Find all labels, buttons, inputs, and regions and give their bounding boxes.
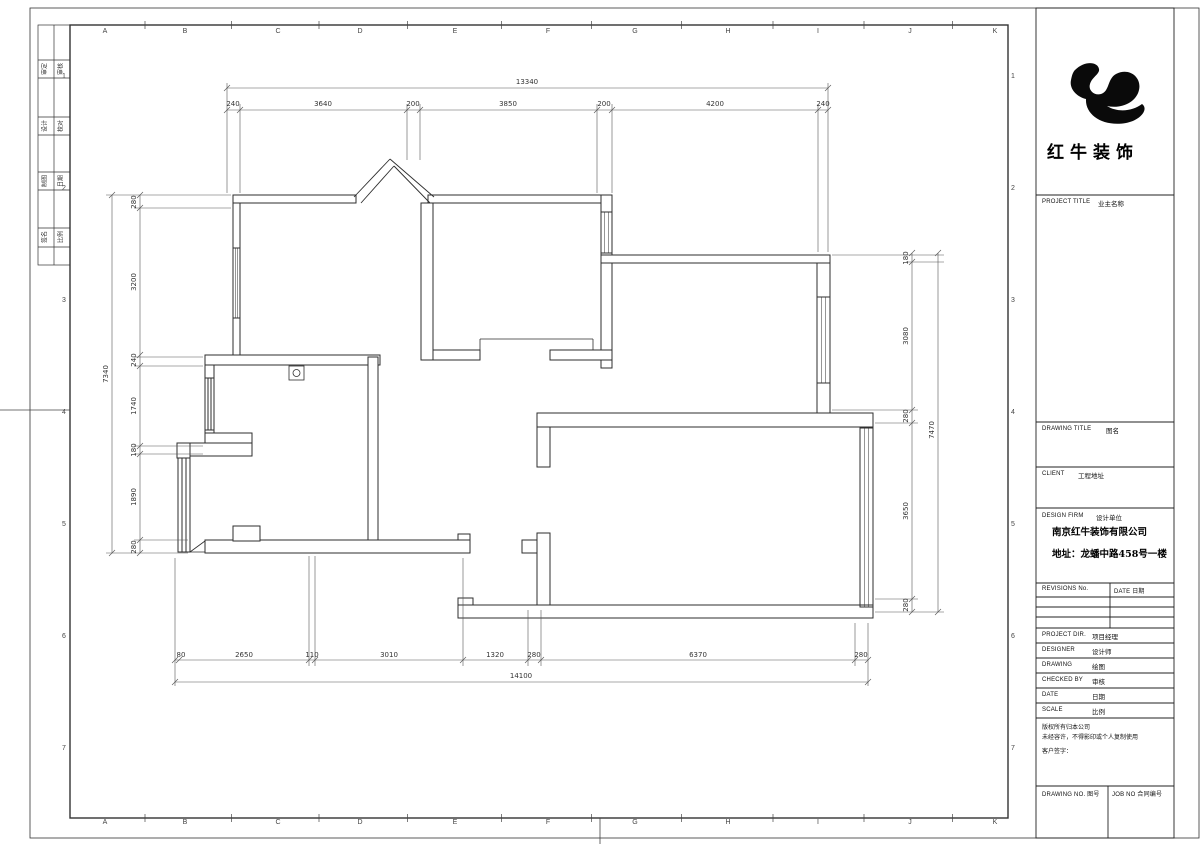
outlet-symbol	[289, 366, 304, 380]
project-dir-value: 项目经理	[1092, 631, 1118, 641]
dim-label: 200	[597, 100, 610, 108]
drawing-title-label: DRAWING TITLE	[1042, 426, 1091, 432]
checked-by-label: CHECKED BY	[1042, 677, 1083, 683]
row-number-left: 4	[62, 409, 66, 416]
wall-room5-left-top	[177, 443, 190, 458]
note-line-2: 未经容许，不得影印或个人复制使用	[1042, 732, 1138, 741]
drawing-sheet: 2403640200385020042002401334080265011030…	[0, 0, 1200, 844]
title-block-grid	[1036, 8, 1174, 838]
drawing-by-label: DRAWING	[1042, 662, 1072, 668]
revision-strip	[38, 25, 70, 265]
row-number-left: 3	[62, 297, 66, 304]
note-line-1: 版权所有归本公司	[1042, 722, 1090, 731]
grid-letter-bottom: B	[183, 819, 188, 826]
dim-label: 180	[902, 251, 910, 264]
row-number-right: 1	[1011, 73, 1015, 80]
grid-letter-bottom: K	[993, 819, 998, 826]
date-value: 日期	[1092, 691, 1105, 701]
grid-letter-bottom: G	[632, 819, 637, 826]
dim-label: 1890	[130, 488, 138, 506]
dim-label: 280	[902, 409, 910, 422]
grid-letter-top: K	[993, 28, 998, 35]
dim-label: 3850	[499, 100, 517, 108]
grid-letter-top: I	[817, 28, 819, 35]
dim-label: 7340	[102, 365, 110, 383]
dim-label: 3640	[314, 100, 332, 108]
wall-left-rooms-right	[368, 357, 378, 541]
client-value: 工程地址	[1078, 470, 1104, 480]
grid-letter-bottom: A	[103, 819, 108, 826]
grid-letter-bottom: F	[546, 819, 550, 826]
revisions-label: REVISIONS No.	[1042, 586, 1088, 592]
wall-living-left-lower	[537, 533, 550, 605]
dim-label: 1740	[130, 397, 138, 415]
dim-label: 110	[305, 651, 318, 659]
wall-living-bottom	[458, 605, 873, 618]
strip-cell-label: 签名	[41, 231, 49, 243]
grid-letter-top: F	[546, 28, 550, 35]
dim-label: 14100	[510, 672, 532, 680]
row-number-right: 6	[1011, 633, 1015, 640]
strip-cell-label: 制图	[41, 175, 49, 187]
dim-label: 1320	[486, 651, 504, 659]
wall-bedroom1-bottom	[205, 355, 380, 365]
grid-letter-bottom: E	[453, 819, 458, 826]
dim-label: 3010	[380, 651, 398, 659]
date-label: DATE	[1042, 692, 1058, 698]
client-label: CLIENT	[1042, 471, 1065, 477]
dim-label: 7470	[928, 421, 936, 439]
wall-room3-right-upper	[817, 263, 830, 297]
wall-living-bottom-step	[458, 598, 473, 605]
grid-letter-top: B	[183, 28, 188, 35]
company-address: 地址：龙蟠中路458号一楼	[1052, 546, 1167, 560]
bay-window	[354, 159, 434, 203]
grid-letter-top: A	[103, 28, 108, 35]
row-number-right: 7	[1011, 745, 1015, 752]
wall-room4-step-upper	[205, 433, 252, 443]
note-line-3: 客户签字：	[1042, 746, 1072, 755]
row-number-left: 6	[62, 633, 66, 640]
dim-label: 6370	[689, 651, 707, 659]
floor-plan-canvas: 2403640200385020042002401334080265011030…	[0, 0, 1200, 844]
dim-label: 280	[854, 651, 867, 659]
walls	[177, 195, 873, 618]
scale-label: SCALE	[1042, 707, 1063, 713]
wall-bedroom1-top	[233, 195, 356, 203]
strip-cell-label: 审定	[41, 63, 49, 75]
window-bedroom1-left	[233, 248, 240, 318]
fold-marks	[0, 410, 600, 844]
drawing-title-value: 图名	[1106, 425, 1119, 435]
design-firm-label: DESIGN FIRM	[1042, 513, 1084, 519]
logo-text: 红牛装饰	[1047, 138, 1139, 163]
grid-letter-bottom: D	[357, 819, 362, 826]
column-room5	[233, 526, 260, 541]
strip-cell-label: 审核	[57, 63, 65, 75]
wall-bedroom2-bottom-right	[550, 350, 612, 360]
grid-letter-top: D	[357, 28, 362, 35]
dim-label: 240	[816, 100, 829, 108]
dim-label: 13340	[516, 78, 538, 86]
dim-label: 3650	[902, 502, 910, 520]
grid-letter-top: C	[275, 28, 280, 35]
project-dir-label: PROJECT DIR.	[1042, 632, 1086, 638]
project-title-label: PROJECT TITLE	[1042, 199, 1090, 205]
revisions-date-label: DATE 日期	[1114, 586, 1145, 595]
strip-cell-label: 校对	[57, 120, 65, 132]
checked-by-value: 审核	[1092, 676, 1105, 686]
scale-value: 比例	[1092, 706, 1105, 716]
dim-label: 240	[226, 100, 239, 108]
row-number-right: 3	[1011, 297, 1015, 304]
row-number-right: 5	[1011, 521, 1015, 528]
window-room4-left	[205, 378, 214, 430]
drawing-by-value: 绘图	[1092, 661, 1105, 671]
wall-living-top	[537, 413, 873, 427]
bull-logo-icon	[1071, 63, 1145, 124]
row-number-left: 7	[62, 745, 66, 752]
design-firm-value: 设计单位	[1096, 512, 1122, 522]
grid-letter-bottom: J	[908, 819, 912, 826]
dim-label: 80	[177, 651, 186, 659]
strip-cell-label: 日期	[57, 175, 65, 187]
designer-value: 设计师	[1092, 646, 1112, 656]
dim-label: 280	[902, 598, 910, 611]
wall-living-left-stub	[537, 427, 550, 467]
wall-bedroom2-top	[428, 195, 601, 203]
dim-label: 280	[130, 195, 138, 208]
wall-room3-top	[601, 255, 830, 263]
job-no-label: JOB NO 合同编号	[1112, 789, 1162, 798]
window-room5-left	[178, 458, 190, 552]
company-name: 南京红牛装饰有限公司	[1052, 524, 1147, 538]
dim-label: 4200	[706, 100, 724, 108]
dim-label: 2650	[235, 651, 253, 659]
row-number-right: 4	[1011, 409, 1015, 416]
wall-bedroom2-right-upper	[601, 195, 612, 212]
wall-bedroom2-bottom-left	[433, 350, 480, 360]
grid-letter-top: E	[453, 28, 458, 35]
dim-label: 200	[406, 100, 419, 108]
row-number-right: 2	[1011, 185, 1015, 192]
wall-living-notch	[522, 540, 537, 553]
window-living-right	[860, 428, 873, 607]
grid-letter-top: G	[632, 28, 637, 35]
window-room3-right	[817, 297, 830, 383]
project-title-value: 业主名称	[1098, 198, 1124, 208]
strip-cell-label: 设计	[41, 120, 49, 132]
dim-label: 280	[130, 540, 138, 553]
dim-label: 3200	[130, 273, 138, 291]
window-bedroom2-right	[601, 212, 612, 253]
dim-label: 180	[130, 443, 138, 456]
grid-letter-top: J	[908, 28, 912, 35]
dim-label: 240	[130, 353, 138, 366]
row-number-left: 5	[62, 521, 66, 528]
wall-room4-left-upper	[205, 365, 214, 378]
drawing-no-label: DRAWING NO. 图号	[1042, 789, 1100, 798]
grid-letter-bottom: H	[725, 819, 730, 826]
grid-letter-top: H	[725, 28, 730, 35]
grid-letter-bottom: C	[275, 819, 280, 826]
dim-label: 3080	[902, 327, 910, 345]
strip-cell-label: 比例	[57, 231, 65, 243]
designer-label: DESIGNER	[1042, 647, 1075, 653]
wall-room3-right-lower	[817, 383, 830, 413]
dim-label: 280	[527, 651, 540, 659]
grid-letter-bottom: I	[817, 819, 819, 826]
wall-bedroom-divider	[421, 203, 433, 360]
wall-hall-bottom	[205, 540, 470, 553]
wall-hall-bottom-notch	[458, 534, 470, 540]
